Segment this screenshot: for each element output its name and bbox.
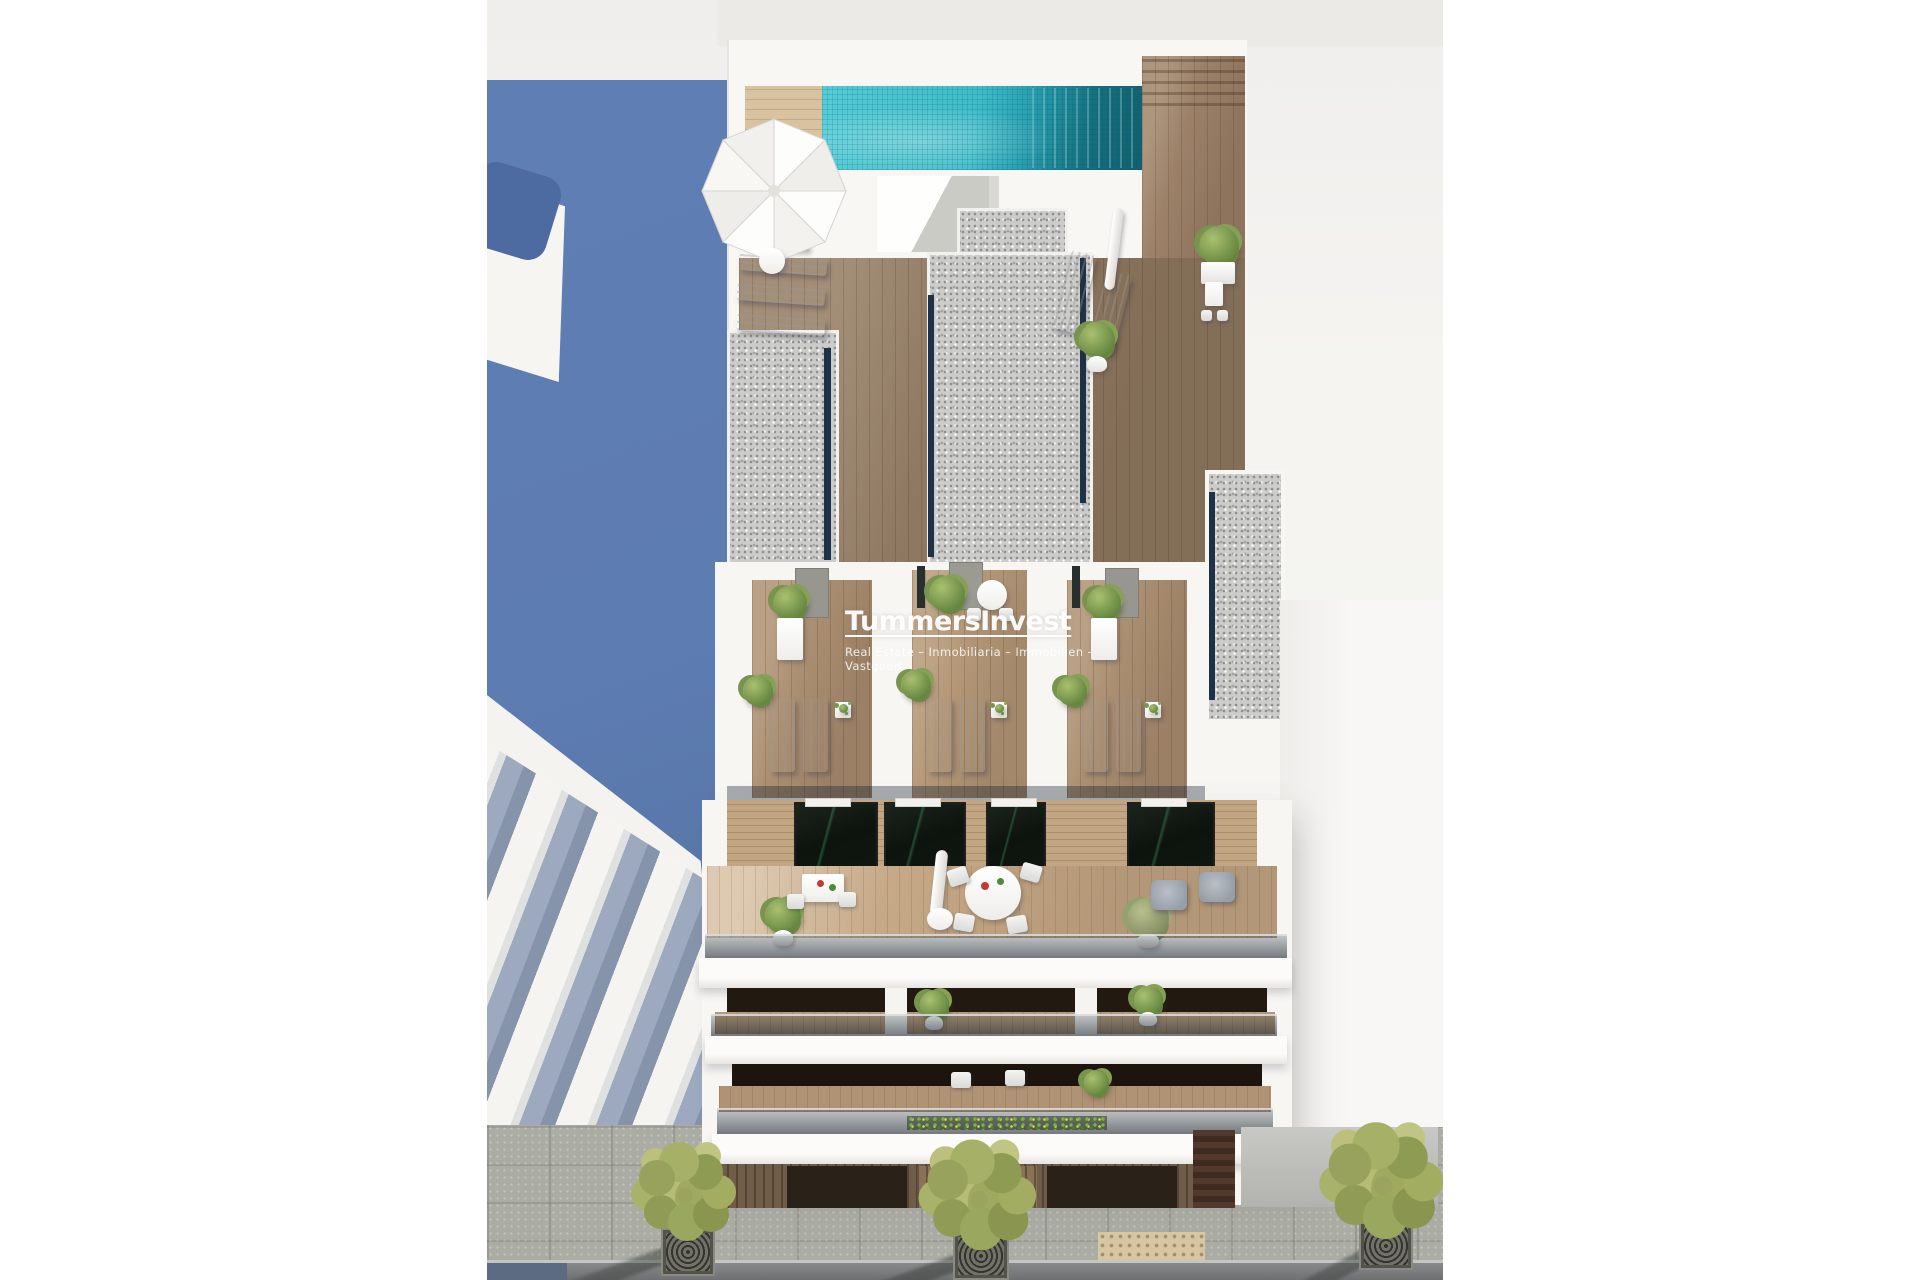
- gravel-roof-right: [1205, 470, 1285, 723]
- glass-edge-right: [1209, 492, 1215, 700]
- bar-stool: [1217, 310, 1228, 321]
- slit-window: [1072, 566, 1080, 608]
- umbrella-table: [759, 248, 785, 274]
- round-table: [965, 866, 1021, 920]
- groundfloor-opening: [787, 1166, 907, 1208]
- dining-chair: [839, 892, 856, 907]
- balcony-bush: [1083, 1070, 1109, 1096]
- dining-chair: [953, 912, 976, 932]
- planter-tree: [1199, 226, 1239, 266]
- sliding-glass-door: [794, 802, 878, 868]
- bar-table: [1205, 282, 1223, 306]
- table-plant: [839, 704, 848, 713]
- sun-umbrella-open: [699, 116, 849, 266]
- balcony2-interior: [727, 988, 1267, 1014]
- street-tree: [970, 1191, 988, 1209]
- ac-vent: [991, 798, 1037, 807]
- balcony-chair: [951, 1072, 971, 1088]
- tree-grate: [663, 1230, 713, 1274]
- armchair: [1151, 880, 1187, 910]
- umbrella-icon: [699, 116, 849, 266]
- sliding-glass-door: [884, 802, 966, 868]
- sun-lounger: [927, 698, 952, 772]
- sun-lounger: [960, 698, 985, 772]
- dining-chair: [1006, 914, 1029, 934]
- sliding-glass-door: [1127, 802, 1215, 868]
- slit-window: [917, 566, 925, 608]
- armchair: [1199, 872, 1235, 902]
- ac-vent: [895, 798, 941, 807]
- tree-grate: [1361, 1224, 1411, 1268]
- solarium-gravel-left: [727, 330, 839, 568]
- dining-chair: [787, 894, 804, 909]
- watermark-subtitle: Real Estate – Inmobiliaria – Immobilien …: [845, 645, 1125, 673]
- render-scene: TummersInvest Real Estate – Inmobiliaria…: [487, 0, 1443, 1280]
- neighbor-right-building: [1280, 600, 1443, 1127]
- table-decor-green: [997, 878, 1004, 885]
- plant-pot: [1087, 356, 1107, 372]
- ac-vent: [805, 798, 851, 807]
- terrace-tree: [743, 676, 773, 706]
- watermark: TummersInvest Real Estate – Inmobiliaria…: [845, 606, 1125, 673]
- planter-box: [1201, 262, 1235, 284]
- storefront-gray: [1241, 1127, 1438, 1207]
- dining-table: [802, 874, 844, 902]
- terrace-tree: [901, 670, 931, 700]
- road-shadow-corner: [487, 1263, 567, 1280]
- table-decor-green: [829, 884, 836, 891]
- table-decor-red: [981, 882, 989, 890]
- terrace-bush: [773, 586, 807, 620]
- table-plant: [1149, 704, 1158, 713]
- tree-grate: [955, 1234, 1007, 1278]
- architectural-render: TummersInvest Real Estate – Inmobiliaria…: [0, 0, 1920, 1280]
- sun-lounger: [1116, 698, 1141, 772]
- sliding-glass-door: [986, 802, 1046, 868]
- table-plant: [995, 704, 1004, 713]
- balcony-chair: [1005, 1070, 1025, 1086]
- pool-reflection-streaks: [1032, 88, 1140, 168]
- pool-deck-steps: [1142, 56, 1245, 106]
- bar-stool: [1201, 310, 1212, 321]
- glass-balustrade: [705, 934, 1287, 960]
- balcony3-interior: [732, 1064, 1262, 1088]
- sun-lounger: [803, 698, 828, 772]
- glass-edge-center-left: [928, 295, 934, 557]
- potted-plant: [1079, 322, 1115, 358]
- glass-edge-left: [824, 348, 831, 560]
- glass-balustrade: [711, 1014, 1277, 1038]
- balcony-slab: [705, 1036, 1287, 1064]
- groundfloor-opening: [1047, 1166, 1177, 1208]
- terrace-front-glass: [727, 786, 1205, 800]
- street-tree: [677, 1188, 693, 1204]
- flower-box: [907, 1116, 1107, 1130]
- storefront-awning-brown: [1193, 1130, 1235, 1208]
- balcony-slab: [699, 958, 1292, 988]
- watermark-title: TummersInvest: [845, 606, 1125, 637]
- ac-vent: [1141, 798, 1187, 807]
- table-decor-red: [817, 880, 824, 887]
- planter-table: [777, 618, 803, 660]
- sun-lounger: [1083, 698, 1108, 772]
- umbrella-base: [927, 908, 953, 930]
- street-tree: [1374, 1177, 1393, 1196]
- sun-lounger: [770, 698, 795, 772]
